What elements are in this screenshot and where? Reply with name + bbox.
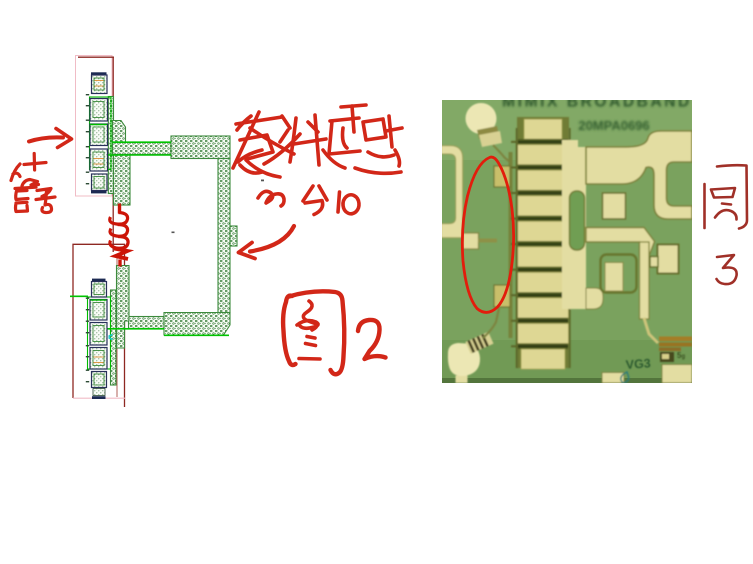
svg-text:VG3: VG3 — [625, 356, 651, 372]
svg-text:20MPA0696: 20MPA0696 — [578, 118, 649, 133]
svg-text:MIMIX BROADBAND: MIMIX BROADBAND — [502, 94, 692, 111]
